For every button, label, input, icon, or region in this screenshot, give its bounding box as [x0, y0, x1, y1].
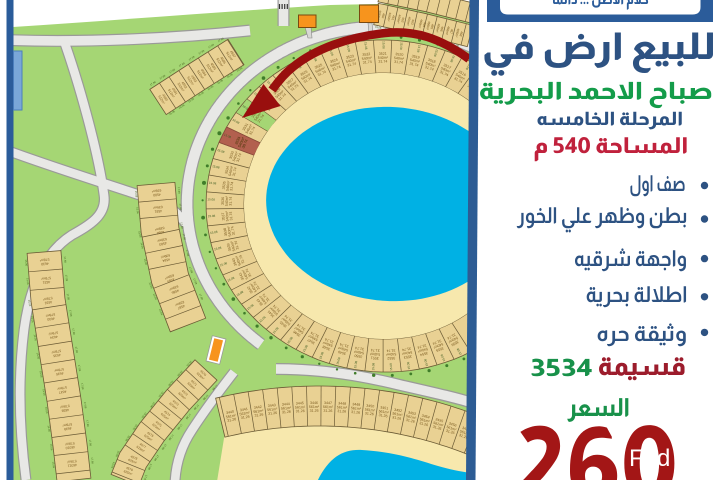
- svg-text:Fnd: Fnd: [629, 445, 670, 472]
